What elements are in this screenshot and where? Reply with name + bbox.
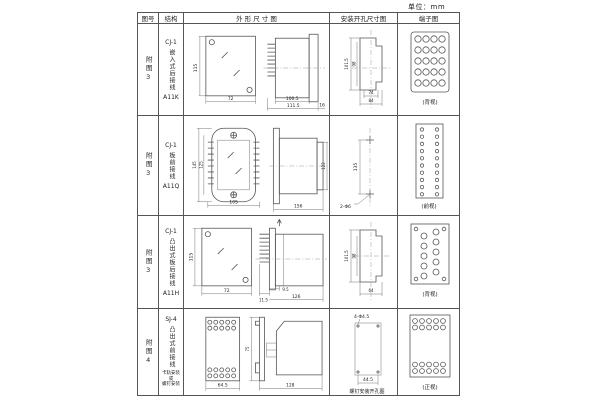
- mounting-cell-row3: 101.5 98 64: [330, 216, 398, 309]
- dim-label: 128: [286, 383, 295, 389]
- outline-drawing-row4: 64.5 75 128: [184, 309, 329, 395]
- dim-label: 64: [368, 288, 374, 293]
- terminal-cell-row3: (背视): [398, 216, 459, 309]
- dim-label: 75: [245, 346, 250, 352]
- dim-label: 11.5: [259, 297, 268, 302]
- socket-label: A11K: [163, 94, 179, 101]
- dim-label: 44.5: [363, 377, 373, 383]
- structure-row1: CJ-1 嵌入式后接线 A11K: [159, 24, 184, 116]
- fig-no-row4: 附图4: [138, 309, 159, 395]
- header-fig-no: 图号: [138, 13, 159, 24]
- header-structure: 结构: [159, 13, 184, 24]
- fig-no-row3: 附图3: [138, 216, 159, 309]
- dim-label: 122: [321, 161, 326, 169]
- fig-no-text: 附图4: [145, 339, 152, 366]
- header-terminal: 端子图: [398, 13, 459, 24]
- outline-cell-row2: 145 125 105 156 122: [184, 116, 330, 216]
- model-label: CJ-1: [165, 39, 177, 46]
- mounting-drawing-row3: 101.5 98 64: [330, 216, 397, 309]
- dim-label: 16: [319, 102, 325, 108]
- dim-label: 84: [368, 98, 374, 103]
- hole-spec-label: 2-Φ6: [340, 204, 351, 210]
- terminal-cell-row2: (前视): [398, 116, 459, 216]
- dim-label: 98: [352, 61, 357, 67]
- dim-label: 156: [294, 203, 303, 209]
- fig-no-row2: 附图3: [138, 116, 159, 216]
- structure-row2: CJ-1 板前接线 A11Q: [159, 116, 184, 216]
- mounting-drawing-row2: 135 2-Φ6: [330, 116, 397, 216]
- outline-drawing-row3: 115 72 11.5 9.5 126: [184, 216, 329, 309]
- terminal-drawing-row2: (前视): [398, 116, 459, 216]
- view-label: (前视): [421, 202, 436, 210]
- dim-label: 64.5: [218, 383, 228, 389]
- dim-label: 101.5: [344, 249, 349, 261]
- note-line: 螺钉安装: [162, 382, 180, 387]
- mounting-drawing-row1: 101.5 98 74 84: [330, 24, 397, 116]
- model-label: SJ-4: [165, 316, 176, 323]
- header-mounting: 安装开孔尺寸图: [330, 13, 398, 24]
- dim-label: 126: [292, 293, 301, 299]
- outline-cell-row1: 115 72 100.5 111.5 16: [184, 24, 330, 116]
- view-label: (背视): [422, 98, 437, 106]
- fig-no-text: 附图3: [145, 152, 152, 179]
- mounting-note: 卡轨安装 或 螺钉安装: [162, 371, 180, 388]
- dim-label: 115: [188, 252, 194, 261]
- dim-label: 72: [224, 287, 230, 293]
- terminal-drawing-row3: (背视): [398, 216, 459, 309]
- structure-label: 嵌入式后接线: [168, 49, 174, 91]
- dim-label: 101.5: [344, 57, 349, 69]
- outline-drawing-row1: 115 72 100.5 111.5 16: [184, 24, 329, 116]
- dim-label: 135: [353, 162, 359, 171]
- model-label: CJ-1: [165, 142, 177, 149]
- terminal-drawing-row1: (背视): [398, 24, 459, 116]
- structure-row3: CJ-1 凸出式板后接线 A11H: [159, 216, 184, 309]
- terminal-cell-row4: (正视): [398, 309, 459, 395]
- unit-label: 单位：mm: [408, 2, 445, 12]
- dim-label: 98: [352, 253, 357, 259]
- drawing-table: 图号 结构 外 形 尺 寸 图 安装开孔尺寸图 端子图 附图3 CJ-1 嵌入式…: [137, 12, 460, 396]
- mounting-caption: 螺钉安装开孔图: [349, 388, 384, 395]
- outline-drawing-row2: 145 125 105 156 122: [184, 116, 329, 216]
- structure-label: 凸出式板后接线: [168, 238, 174, 287]
- outline-cell-row4: 64.5 75 128: [184, 309, 330, 395]
- model-label: CJ-1: [165, 228, 177, 235]
- view-label: (背视): [422, 290, 437, 298]
- header-outline: 外 形 尺 寸 图: [184, 13, 330, 24]
- note-line: 卡轨安装: [162, 371, 180, 376]
- socket-label: A11H: [163, 290, 179, 297]
- terminal-drawing-row4: (正视): [398, 309, 459, 395]
- dim-label: 72: [228, 95, 234, 101]
- hole-spec-label: 4-Φ4.5: [354, 314, 369, 320]
- dim-label: 74: [368, 90, 374, 95]
- fig-no-text: 附图3: [145, 249, 152, 276]
- mounting-cell-row4: 4-Φ4.5 44.5 螺钉安装开孔图: [330, 309, 398, 395]
- dim-label: 9.5: [282, 286, 289, 291]
- mounting-cell-row1: 101.5 98 74 84: [330, 24, 398, 116]
- fig-no-row1: 附图3: [138, 24, 159, 116]
- dim-label: 111.5: [287, 103, 300, 109]
- structure-label: 板前接线: [168, 152, 174, 180]
- terminal-cell-row1: (背视): [398, 24, 459, 116]
- mounting-drawing-row4: 4-Φ4.5 44.5 螺钉安装开孔图: [330, 309, 397, 395]
- fig-no-text: 附图3: [145, 56, 152, 83]
- dim-label: 100.5: [286, 95, 299, 101]
- dim-label: 105: [229, 199, 238, 205]
- structure-row4: SJ-4 凸出式前接线 卡轨安装 或 螺钉安装: [159, 309, 184, 395]
- dim-label: 145: [192, 160, 197, 168]
- dim-label: 115: [193, 63, 199, 72]
- mounting-cell-row2: 135 2-Φ6: [330, 116, 398, 216]
- note-line: 或: [169, 377, 174, 382]
- outline-cell-row3: 115 72 11.5 9.5 126: [184, 216, 330, 309]
- structure-label: 凸出式前接线: [168, 326, 174, 368]
- manual-page: 单位：mm 图号 结构 外 形 尺 寸 图 安装开孔尺寸图 端子图 附图3 CJ…: [0, 0, 600, 400]
- socket-label: A11Q: [163, 183, 179, 190]
- dim-label: 125: [198, 160, 203, 168]
- view-label: (正视): [422, 383, 437, 391]
